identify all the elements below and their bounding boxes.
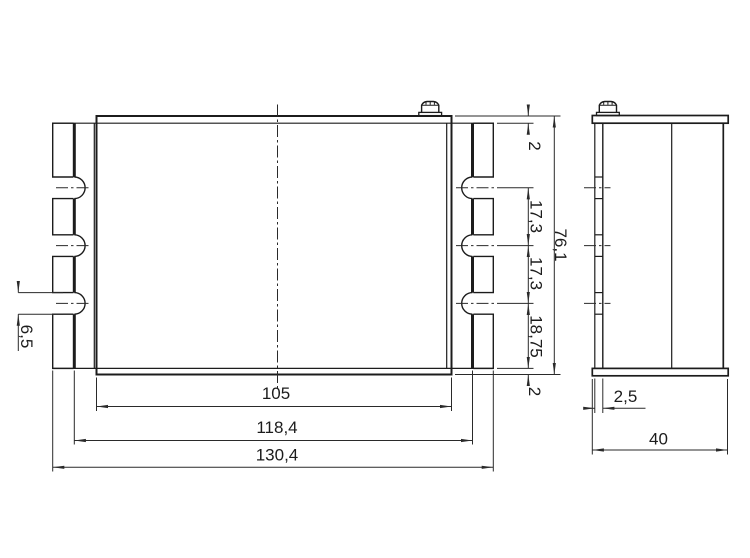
flange-tab [473,256,493,292]
flange-tab [53,123,74,177]
flange-tab [473,123,493,177]
side-bottom-plate [592,368,728,375]
side-lid-plate [592,116,728,124]
technical-drawing-canvas: 2 17,3 17,3 18,75 2 76,1 6,5 [0,0,750,558]
dim-label-wall-top: 2 [525,141,544,150]
dim-label-slot-pitch-2: 17,3 [527,257,546,290]
dim-wall-bottom: 2 [525,375,544,397]
side-screw [597,101,620,115]
flange-tab [53,314,74,368]
dim-overall-height: 76,1 [551,116,570,375]
flange-tab [53,256,74,292]
flange-tab [473,314,493,368]
flange-tab [473,199,493,235]
dim-slot-pitch-2: 17,3 [527,246,546,304]
dim-label-slot-spacing: 118,4 [256,418,297,437]
screw-washer [597,112,620,115]
dim-label-plate-thickness: 2,5 [614,387,638,406]
dim-label-overall-height: 76,1 [551,228,570,261]
dim-label-overall-width: 130,4 [256,446,299,465]
dim-wall-top: 2 [525,105,544,151]
front-screw [419,101,442,115]
dim-slot-pitch-1: 17,3 [527,188,546,246]
right-mounting-flange [456,123,534,368]
dim-slot-width: 6,5 [17,283,63,352]
screw-washer [419,112,442,115]
enclosure-body-outline [97,116,452,375]
left-mounting-flange [53,123,91,368]
dim-body-width: 105 [97,378,452,412]
front-view [53,101,534,389]
side-view [584,101,728,375]
dim-label-wall-bottom: 2 [525,387,544,396]
dim-slot-spacing: 118,4 [74,371,472,445]
flange-tab [53,199,74,235]
dim-label-slot-pitch-1: 17,3 [527,200,546,233]
dim-slot-to-bottom: 18,75 [527,303,546,368]
dim-depth: 40 [592,379,727,455]
dim-label-slot-width: 6,5 [17,325,36,349]
drawing-page: 2 17,3 17,3 18,75 2 76,1 6,5 [0,0,750,558]
dim-label-body-width: 105 [262,384,290,403]
dim-label-slot-to-bottom: 18,75 [527,315,546,358]
dim-label-depth: 40 [649,430,668,449]
